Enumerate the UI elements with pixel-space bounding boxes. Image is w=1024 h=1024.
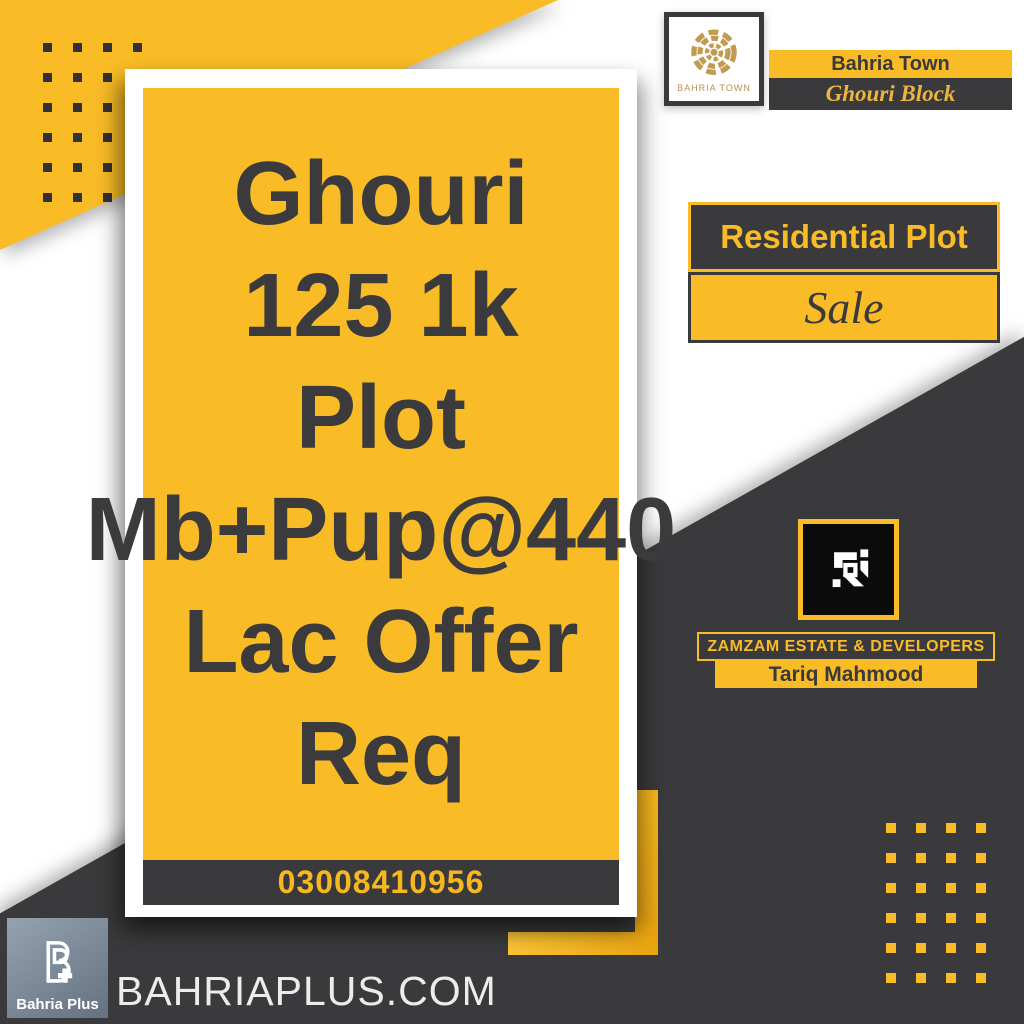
dots-pattern-bottom-right (886, 823, 987, 984)
real-estate-poster: { "brand": { "emblem_caption": "BAHRIA T… (0, 0, 1024, 1024)
bahria-plus-caption: Bahria Plus (16, 996, 99, 1013)
bahria-plus-logo-box: Bahria Plus (7, 918, 108, 1018)
listing-title-line: 125 1k (243, 250, 518, 362)
agent-name-bar: Tariq Mahmood (715, 661, 977, 688)
listing-type-badge: Residential Plot (688, 202, 1000, 272)
listing-title-line: Req (296, 698, 466, 810)
yellow-bracket-vertical (635, 790, 658, 955)
agency-name-bar: ZAMZAM ESTATE & DEVELOPERS (697, 632, 995, 661)
listing-status-badge: Sale (688, 272, 1000, 343)
bahria-town-emblem-icon (686, 26, 742, 82)
listing-card-body: Ghouri 125 1k Plot Mb+Pup@440 Lac Offer … (143, 88, 619, 860)
listing-title-line: Mb+Pup@440 (86, 474, 676, 586)
phone-number: 03008410956 (143, 860, 619, 905)
zamzam-logo-icon (817, 538, 881, 602)
bahria-plus-monogram-icon (27, 934, 89, 996)
listing-title-line: Lac Offer (183, 586, 578, 698)
zamzam-logo-box (798, 519, 899, 620)
bahria-town-emblem-caption: BAHRIA TOWN (677, 83, 751, 93)
brand-town-bar: Bahria Town (769, 50, 1012, 78)
bahria-town-logo-box: BAHRIA TOWN (664, 12, 764, 106)
listing-title-line: Plot (296, 362, 466, 474)
brand-block-bar: Ghouri Block (769, 78, 1012, 110)
yellow-bracket-horizontal (508, 932, 658, 955)
listing-title-line: Ghouri (234, 138, 529, 250)
listing-card: Ghouri 125 1k Plot Mb+Pup@440 Lac Offer … (125, 69, 637, 917)
website-url: BAHRIAPLUS.COM (116, 968, 497, 1015)
